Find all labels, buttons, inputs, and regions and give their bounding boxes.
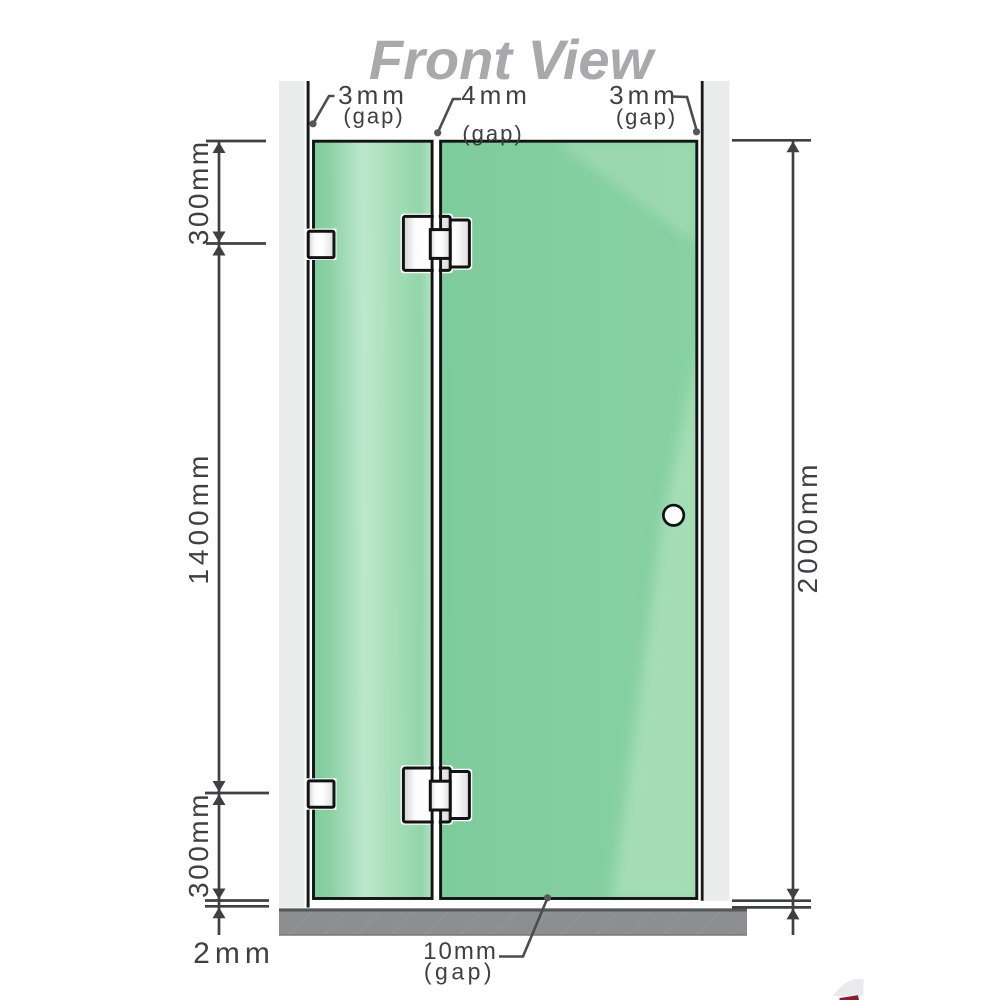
svg-text:(gap): (gap) xyxy=(343,104,404,129)
svg-text:2000mm: 2000mm xyxy=(792,461,823,594)
svg-text:300mm: 300mm xyxy=(183,139,214,245)
svg-text:300mm: 300mm xyxy=(183,792,214,898)
svg-text:2mm: 2mm xyxy=(193,937,275,970)
svg-text:1400mm: 1400mm xyxy=(183,452,214,585)
svg-text:4mm: 4mm xyxy=(461,80,531,110)
svg-text:(gap): (gap) xyxy=(462,121,523,146)
svg-text:(gap): (gap) xyxy=(616,105,677,130)
svg-text:(gap): (gap) xyxy=(424,959,495,985)
